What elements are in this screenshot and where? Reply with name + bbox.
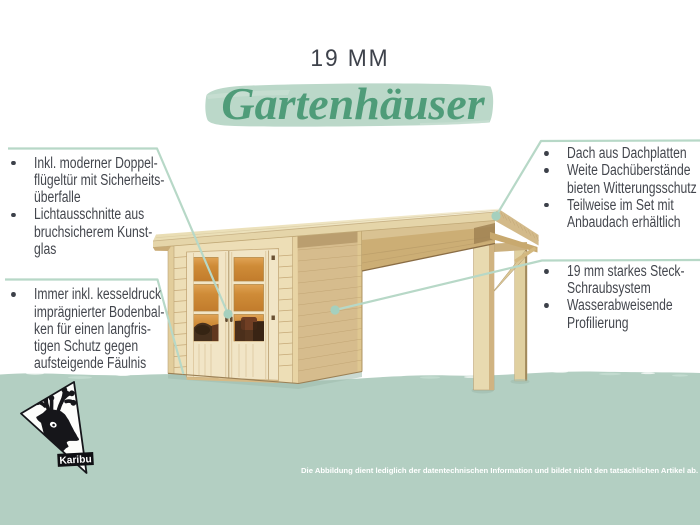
svg-text:Karibu: Karibu — [59, 454, 92, 467]
